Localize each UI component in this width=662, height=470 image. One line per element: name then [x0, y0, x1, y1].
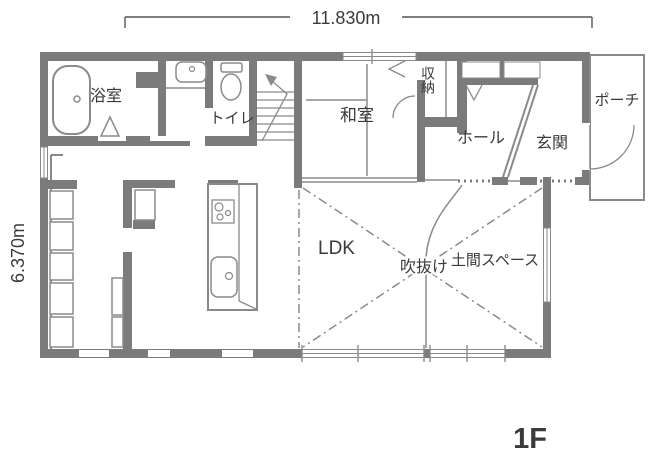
stairs	[257, 80, 294, 141]
wash-door-gap	[150, 136, 190, 141]
room-labels: 浴室 トイレ 和室 収納 ホール 玄関 ポーチ LDK 吹抜け 土間スペース	[90, 66, 640, 276]
fixtures	[50, 55, 644, 347]
bedroom-closet-shelves	[50, 191, 73, 347]
genkan-partition	[503, 85, 538, 177]
hall-closet	[462, 62, 500, 78]
window-sliding-doma	[430, 345, 505, 362]
bath-folding-door-icon	[101, 117, 119, 136]
window-top-washitsu	[343, 49, 416, 64]
kitchen-counter	[208, 184, 257, 310]
room-label-toilet: トイレ	[209, 110, 254, 127]
hall-closet	[504, 62, 540, 78]
washbasin	[176, 62, 206, 82]
room-label-entrance: 玄関	[536, 134, 568, 152]
bathtub	[53, 66, 90, 134]
toilet-bowl	[221, 74, 241, 100]
room-label-japanese-room: 和室	[340, 106, 374, 125]
room-label-hall: ホール	[457, 130, 505, 147]
floor-plan-page: 11.830m 6.370m	[0, 0, 662, 470]
washitsu-door-arc	[393, 96, 415, 118]
porch-outline	[590, 55, 644, 200]
room-label-ldk: LDK	[318, 238, 355, 259]
dimension-height-label: 6.370m	[8, 223, 28, 283]
front-door-gap	[582, 123, 590, 170]
folding-door-icon	[389, 61, 405, 77]
bedroom-side-closet	[112, 278, 123, 315]
folding-door-icon	[466, 85, 482, 100]
bathtub-drain	[74, 96, 80, 102]
room-label-bathroom: 浴室	[90, 87, 122, 105]
windows-bottom-small	[79, 350, 253, 357]
dimension-width-label: 11.830m	[312, 8, 381, 28]
kitchen-faucet	[226, 273, 233, 280]
floor-label: 1F	[513, 423, 547, 455]
pantry-closet	[135, 190, 155, 220]
room-label-porch: ポーチ	[594, 92, 639, 109]
window-sliding-ldk	[302, 345, 424, 362]
kitchen-sink	[211, 257, 237, 297]
room-label-atrium-void: 吹抜け	[400, 258, 448, 276]
window-right-wall	[544, 228, 551, 302]
bedroom-side-closet	[112, 317, 123, 347]
floor-plan-canvas: 11.830m 6.370m	[0, 0, 662, 470]
room-label-doma-space: 土間スペース	[451, 252, 539, 269]
room-label-storage: 収納	[420, 66, 436, 95]
toilet-tank	[221, 63, 242, 72]
window-left-wall	[41, 147, 48, 178]
washbasin-faucet	[190, 67, 195, 72]
